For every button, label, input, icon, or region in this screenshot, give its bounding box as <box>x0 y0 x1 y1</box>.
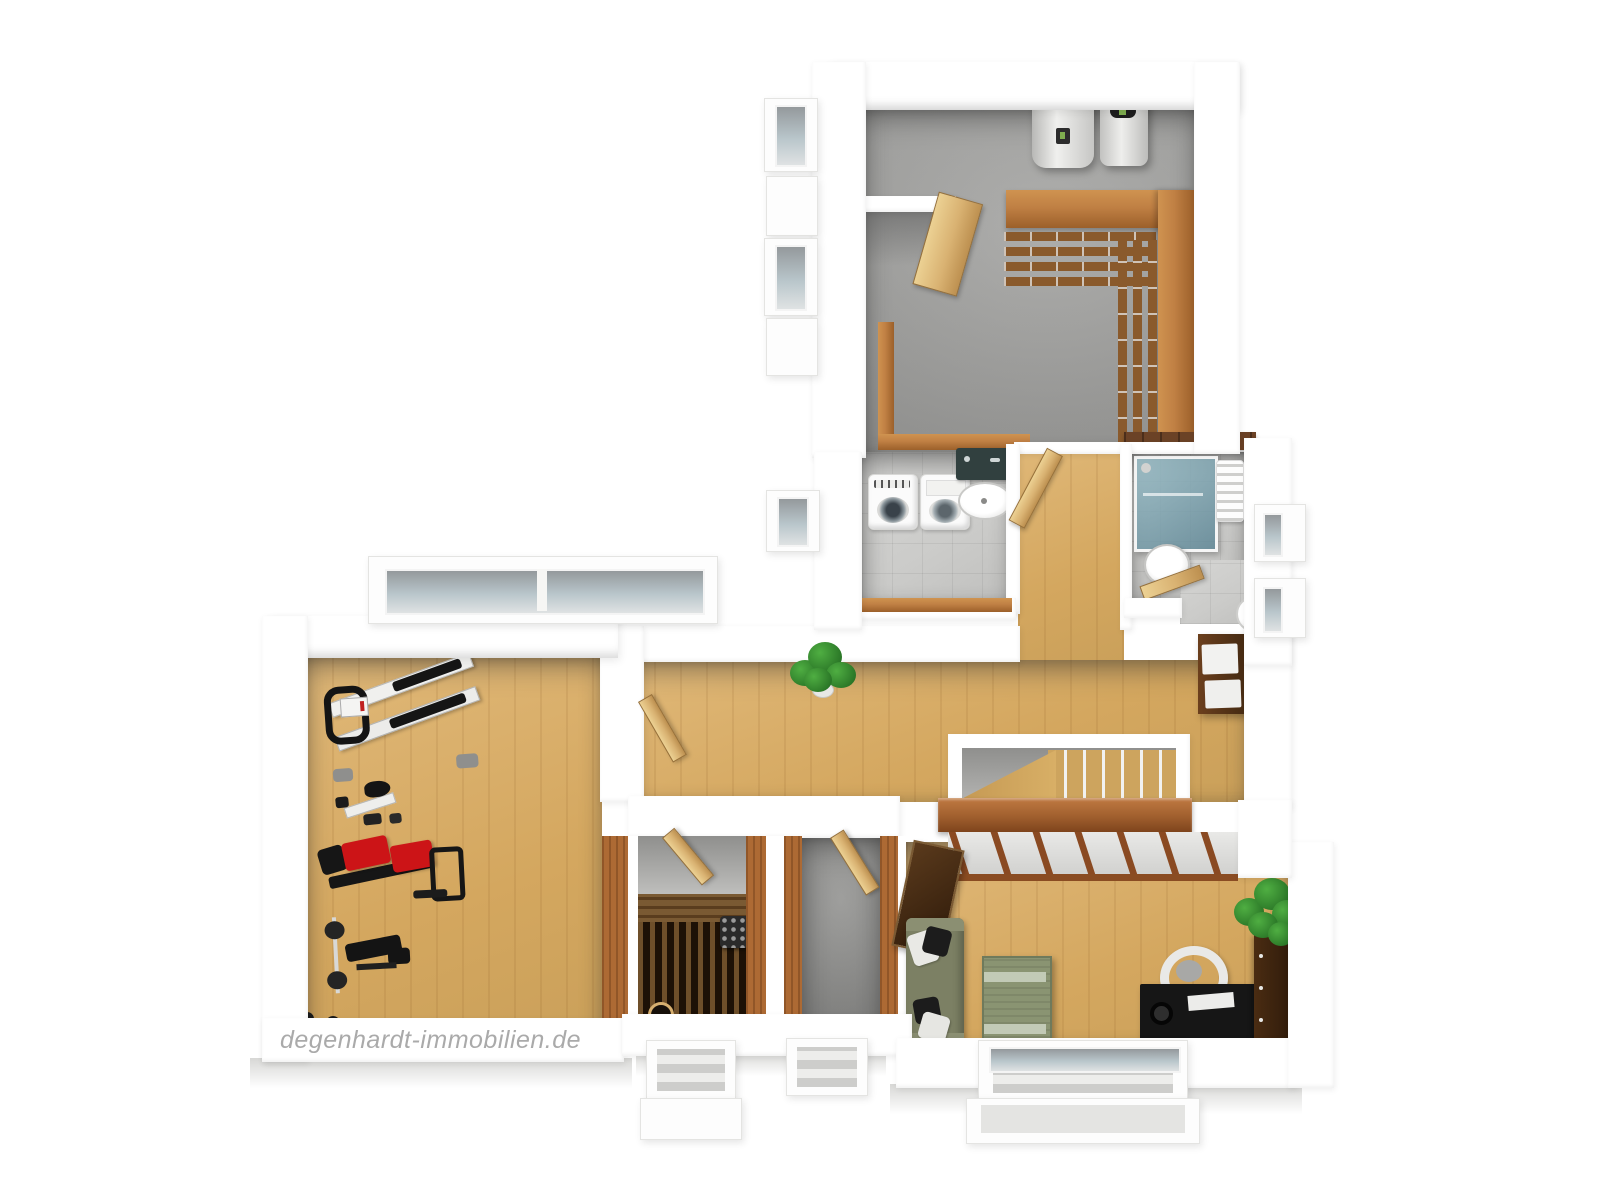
multi-gym-red <box>318 824 458 915</box>
shelf-column <box>1118 240 1127 445</box>
wall-utility-top <box>828 62 1240 110</box>
wall-bathroom-bottom <box>1124 598 1182 618</box>
storage-knee-wall-vertical <box>878 322 894 450</box>
lightwell <box>766 490 820 552</box>
desk-lamp <box>1150 1002 1173 1025</box>
wall-laundry-hall <box>1006 444 1020 614</box>
watermark: degenhardt-immobilien.de <box>280 1026 581 1055</box>
shelf-column <box>1148 240 1157 445</box>
window-mullion <box>537 569 547 611</box>
wall-laundry-left <box>814 452 862 630</box>
towel-radiator <box>1216 460 1244 522</box>
cellar-lightwell <box>786 1038 868 1096</box>
lightwell <box>764 238 818 316</box>
wall-living-right <box>1288 842 1334 1088</box>
closet-ledge <box>948 874 1238 881</box>
sauna-lightwell-outer <box>640 1098 742 1140</box>
dryer-door <box>929 499 961 523</box>
utility-sink-counter <box>956 448 1010 480</box>
washer-controls <box>874 480 910 488</box>
cushion-black <box>921 925 953 957</box>
lightwell <box>1254 578 1306 638</box>
wall-utility-left <box>812 62 866 458</box>
wall-utility-hall <box>1014 442 1196 454</box>
shelving-right-rail <box>1158 190 1194 452</box>
floorplan: degenhardt-immobilien.de <box>0 0 1600 1200</box>
shower-head <box>1141 463 1151 473</box>
sofa <box>906 918 964 1046</box>
shadow-band <box>250 1058 632 1088</box>
wall-utility-right <box>1194 62 1240 454</box>
lightwell <box>1254 504 1306 562</box>
living-lightwell-outer <box>966 1098 1200 1144</box>
stair-handrail-wall <box>938 798 1192 832</box>
washer-door <box>877 497 909 523</box>
lightwell-box <box>766 318 818 376</box>
living-lightwell <box>978 1040 1188 1100</box>
hallway-potted-plant <box>786 638 860 706</box>
glass-shower <box>1134 456 1218 552</box>
sauna-lightwell <box>646 1040 736 1100</box>
shelf-column <box>1133 240 1142 445</box>
tank-label <box>1056 128 1070 144</box>
wall-fitness-left <box>262 616 308 1062</box>
lightwell-box <box>766 176 818 236</box>
washing-machine <box>868 474 918 530</box>
bench-press-machine <box>323 674 492 785</box>
wall-living-topright <box>1238 800 1292 878</box>
desk-paper <box>1187 992 1234 1011</box>
built-in-closet <box>948 832 1238 878</box>
laundry-bottom-ledge <box>860 598 1012 612</box>
utility-sink-bowl <box>958 482 1012 520</box>
fitness-window-bay <box>368 556 718 624</box>
lightwell <box>764 98 818 172</box>
weight-bench-with-barbell <box>308 913 412 1000</box>
floorplan-canvas: degenhardt-immobilien.de <box>0 0 1600 1200</box>
